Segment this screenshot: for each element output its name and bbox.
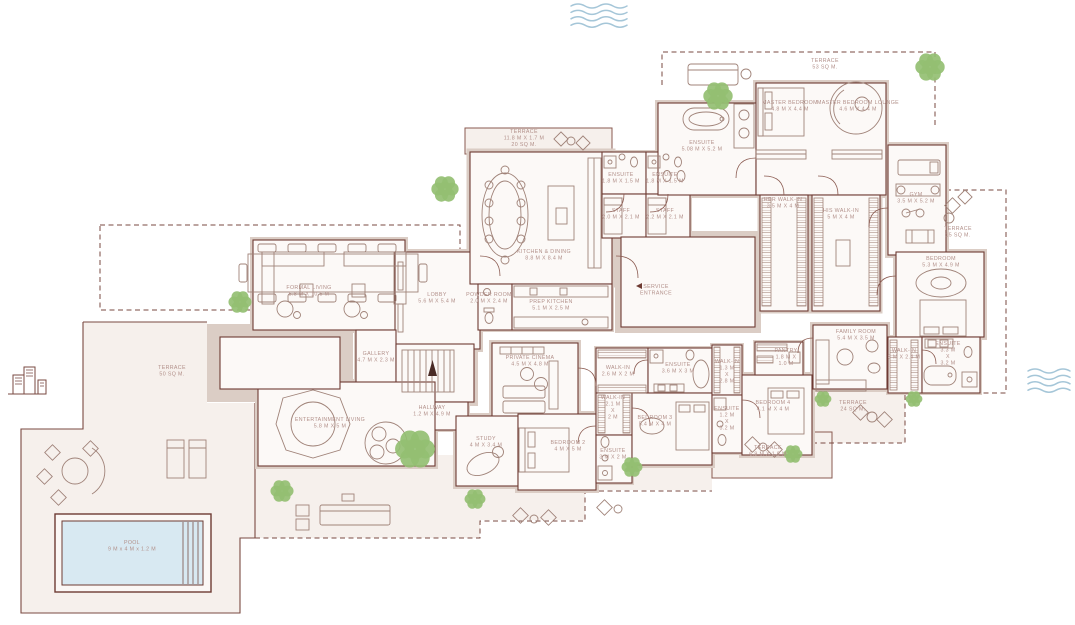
master-terrace-furniture (688, 64, 751, 85)
label-bedroom-3: BEDROOM 35.4 M X 4 M (638, 415, 673, 428)
floor-plan-page: TERRACE50 SQ M.FORMAL LIVING5.8 M X 10.5… (0, 0, 1075, 625)
powder-room-room (478, 284, 512, 330)
water-waves-icon (1028, 369, 1070, 392)
label-ensuite-2: ENSUITE3 M X 2 M (599, 448, 626, 461)
tree-icon (431, 176, 458, 201)
label-his-walk-in: HIS WALK-IN5 M X 4 M (823, 208, 859, 221)
pool-water (62, 521, 203, 585)
label-prep-kitchen: PREP KITCHEN5.1 M X 2.5 M (529, 299, 572, 312)
label-terrace-gym: TERRACE15 SQ M. (944, 226, 972, 239)
service-hall-room (621, 237, 755, 327)
label-family-room: FAMILY ROOM5.4 M X 3.5 M (836, 329, 876, 342)
pool (55, 514, 211, 592)
bedroom-4-room (742, 375, 812, 455)
label-gallery: GALLERY4.7 M X 2.3 M (357, 351, 395, 364)
label-powder-room: POWDER ROOM2.0 M X 2.4 M (466, 292, 512, 305)
bedroom-3-room (632, 393, 712, 465)
label-walk-in-3: WALK-IN2.6 M X 2 M (602, 365, 634, 378)
label-walk-in-bedroom-right: WALK-IN3 M X 2.4 M (888, 348, 920, 361)
label-bedroom-2: BEDROOM 24 M X 5 M (551, 440, 586, 453)
city-skyline-icon (8, 367, 46, 394)
water-waves-icon (571, 4, 627, 27)
label-terrace-family: TERRACE24 SQ M. (839, 400, 867, 413)
tree-icon (915, 53, 944, 80)
villa-floor-plan: TERRACE50 SQ M.FORMAL LIVING5.8 M X 10.5… (0, 0, 1075, 625)
label-service-entrance: SERVICEENTRANCE (640, 284, 672, 297)
label-ensuite-3: ENSUITE3.6 M X 3 M (662, 362, 694, 375)
study-room (456, 416, 518, 486)
label-terrace-left: TERRACE50 SQ M. (158, 365, 186, 378)
label-her-walk-in: HER WALK-IN3.5 M X 4 M (764, 197, 802, 210)
label-private-cinema: PRIVATE CINEMA4.5 M X 4.8 M (506, 355, 555, 368)
label-bedroom-4: BEDROOM 44.1 M X 4 M (756, 400, 791, 413)
label-formal-living: FORMAL LIVING5.8 M X 10.5 M (286, 285, 331, 298)
label-terrace-bedrooms: TERRACE6.9 M X 1.8 M (749, 445, 787, 458)
label-terrace-master: TERRACE53 SQ M. (811, 58, 839, 71)
entry-corridor-room (220, 337, 340, 389)
label-bedroom-right: BEDROOM5.3 M X 4.9 M (922, 256, 960, 269)
label-hallway: HALLWAY1.2 M X 4.9 M (413, 405, 451, 418)
